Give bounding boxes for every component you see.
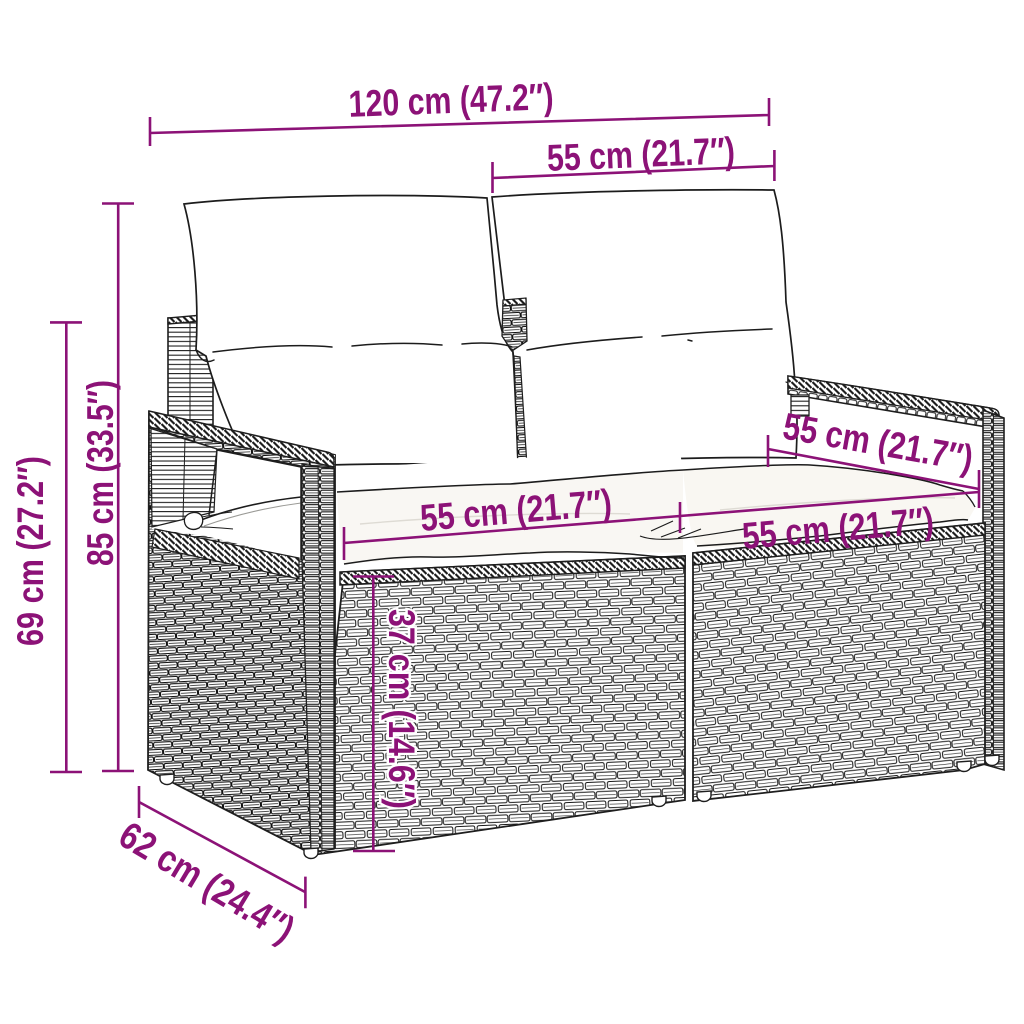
- svg-text:85 cm (33.5″): 85 cm (33.5″): [79, 380, 121, 566]
- svg-text:55 cm (21.7″): 55 cm (21.7″): [546, 129, 736, 179]
- svg-text:69 cm (27.2″): 69 cm (27.2″): [9, 456, 51, 646]
- svg-text:120 cm (47.2″): 120 cm (47.2″): [348, 75, 554, 125]
- svg-text:37 cm (14.6″): 37 cm (14.6″): [381, 609, 423, 809]
